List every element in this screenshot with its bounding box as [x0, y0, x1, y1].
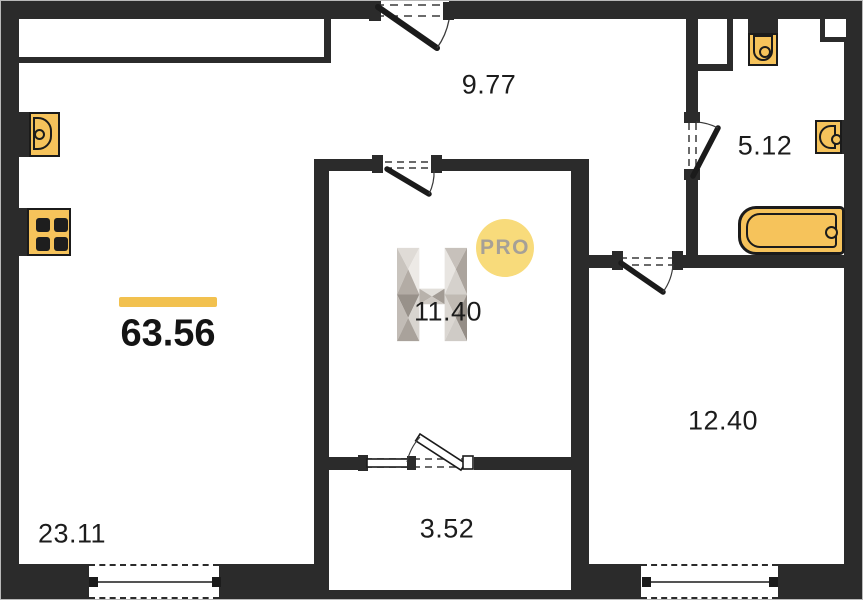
toilet-tank	[748, 15, 778, 34]
room-area-closet: 3.52	[420, 514, 475, 545]
door-leaf	[387, 169, 429, 194]
wall-bath-left-b	[686, 173, 698, 255]
pro-badge: PRO	[476, 219, 534, 277]
closet-door	[358, 434, 473, 471]
door-panel	[367, 459, 409, 467]
toilet-icon	[748, 33, 778, 66]
door-leaf	[621, 263, 663, 292]
corner-shaft	[820, 19, 846, 42]
bathtub-drain	[825, 226, 838, 239]
washbasin-tap	[831, 134, 842, 145]
kitchen-sink-icon	[29, 112, 60, 157]
door-end-cap	[463, 456, 473, 469]
room-area-center: 11.40	[414, 297, 482, 328]
bathtub-inner	[746, 213, 837, 248]
bathtub-icon	[738, 206, 845, 255]
washbasin-icon	[815, 120, 842, 154]
room-area-hallway: 9.77	[462, 70, 517, 101]
wall-closet-top-a	[329, 457, 363, 470]
logo-h-watermark	[397, 247, 467, 342]
wall-bottom-b	[219, 564, 326, 599]
wall-right	[844, 1, 862, 599]
window-right	[641, 564, 778, 599]
wall-bottom-d	[778, 564, 846, 599]
burner	[36, 218, 50, 232]
window-left	[89, 564, 219, 599]
wall-bottom-thin	[326, 590, 573, 599]
door-swing-arc	[429, 170, 434, 194]
wall-room-top-b	[432, 159, 586, 171]
room-area-bathroom: 5.12	[738, 131, 793, 162]
room-area-right: 12.40	[688, 406, 758, 437]
toilet-drain	[759, 46, 771, 58]
door-leaf	[693, 128, 718, 176]
floor-plan: PRO 63.56 23.11 9.77 5.12 11.40 12.40 3.…	[0, 0, 863, 600]
wall-top-right	[449, 1, 862, 19]
entrance-door	[369, 1, 454, 48]
total-area-underline	[119, 297, 217, 307]
door-swing-arc	[696, 122, 718, 128]
sink-drain	[34, 129, 45, 140]
wall-left	[1, 1, 19, 599]
total-area-label: 63.56	[120, 313, 215, 356]
room-right-door	[612, 251, 683, 292]
wall-corridor-b	[679, 255, 846, 268]
kitchen-sink-mount	[19, 112, 29, 157]
door-panel-angled	[416, 434, 466, 470]
wall-top-left	[1, 1, 373, 19]
door-pivot	[407, 456, 416, 470]
built-in-wardrobe	[19, 19, 331, 63]
wall-room-left	[314, 159, 329, 593]
stove-icon	[27, 208, 71, 256]
wall-room-top-a	[314, 159, 383, 171]
door-swing-arc	[407, 437, 420, 462]
vent-shaft	[698, 19, 733, 71]
wall-corridor-a	[589, 255, 618, 268]
door-leaf	[378, 7, 437, 48]
door-swing-arc	[663, 264, 673, 292]
stove-mount	[19, 208, 27, 256]
room-area-living: 23.11	[38, 519, 106, 550]
bathroom-door	[684, 112, 718, 180]
burner	[54, 218, 68, 232]
door-swing-arc	[437, 20, 449, 48]
wall-bath-left-a	[686, 19, 698, 119]
wall-room-right	[571, 159, 589, 593]
wall-bottom-a	[1, 564, 89, 599]
wall-closet-top-b	[474, 457, 571, 470]
burner	[36, 237, 50, 251]
burner	[54, 237, 68, 251]
